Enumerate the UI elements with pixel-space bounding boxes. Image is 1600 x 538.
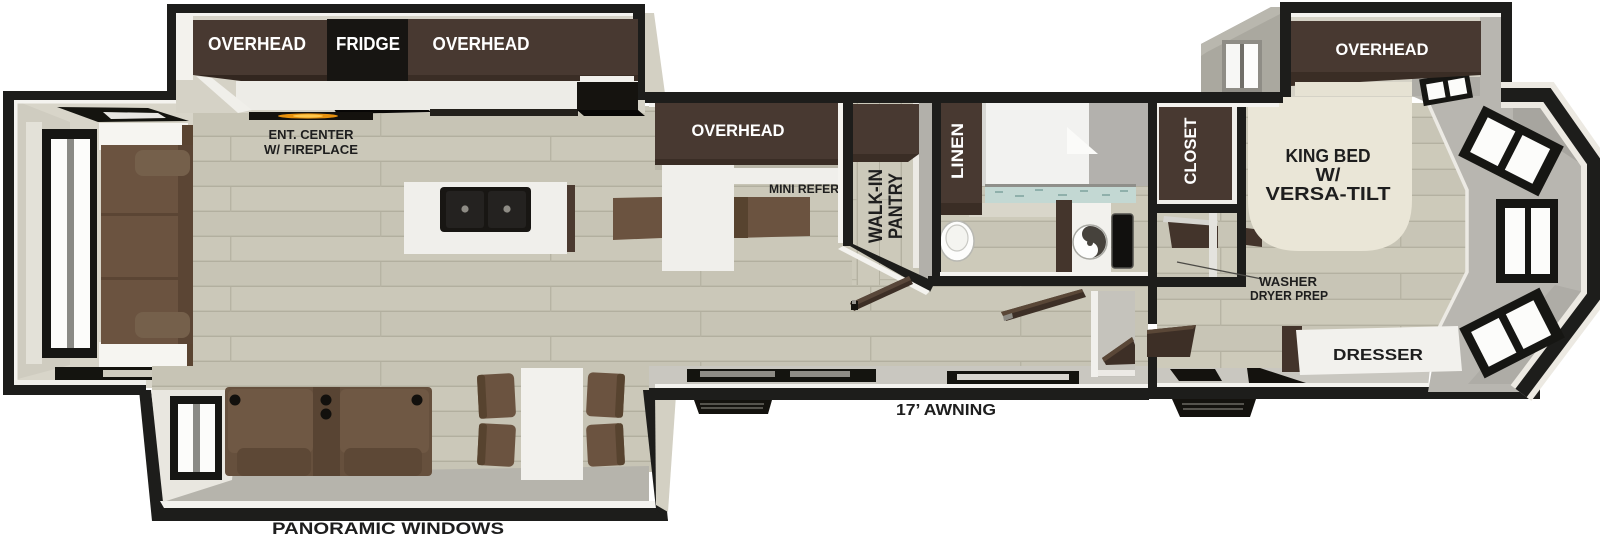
svg-text:PANORAMIC WINDOWS: PANORAMIC WINDOWS [272,519,504,538]
svg-text:FRIDGE: FRIDGE [336,34,400,54]
svg-text:OVERHEAD: OVERHEAD [692,121,785,140]
svg-text:WASHER: WASHER [1259,275,1317,289]
svg-text:CLOSET: CLOSET [1181,117,1200,185]
svg-text:OVERHEAD: OVERHEAD [433,34,530,54]
svg-text:DRYER PREP: DRYER PREP [1250,289,1328,303]
svg-text:MINI REFER: MINI REFER [769,182,839,196]
svg-text:W/: W/ [1316,164,1341,185]
svg-text:OVERHEAD: OVERHEAD [208,34,306,54]
svg-text:OVERHEAD: OVERHEAD [1336,40,1429,59]
svg-text:17’ AWNING: 17’ AWNING [896,402,996,419]
svg-text:PANTRY: PANTRY [886,173,907,239]
svg-text:WALK-IN: WALK-IN [866,169,887,243]
svg-text:DRESSER: DRESSER [1333,347,1424,364]
svg-text:LINEN: LINEN [949,123,967,179]
svg-text:ENT. CENTER: ENT. CENTER [269,127,355,142]
svg-text:W/ FIREPLACE: W/ FIREPLACE [264,142,358,157]
svg-text:KING BED: KING BED [1286,145,1371,166]
svg-text:VERSA-TILT: VERSA-TILT [1266,183,1392,204]
